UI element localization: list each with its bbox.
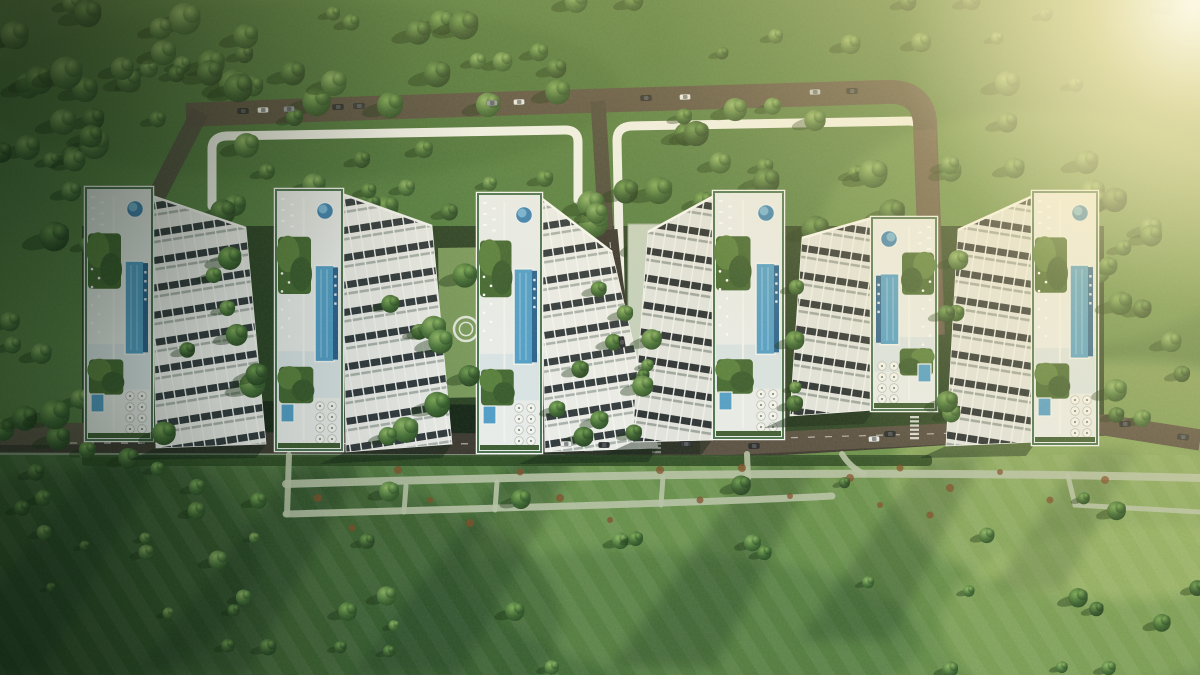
lighting-overlay: [0, 0, 1200, 675]
rendered-scene: [0, 0, 1200, 675]
aerial-site-render: [0, 0, 1200, 675]
